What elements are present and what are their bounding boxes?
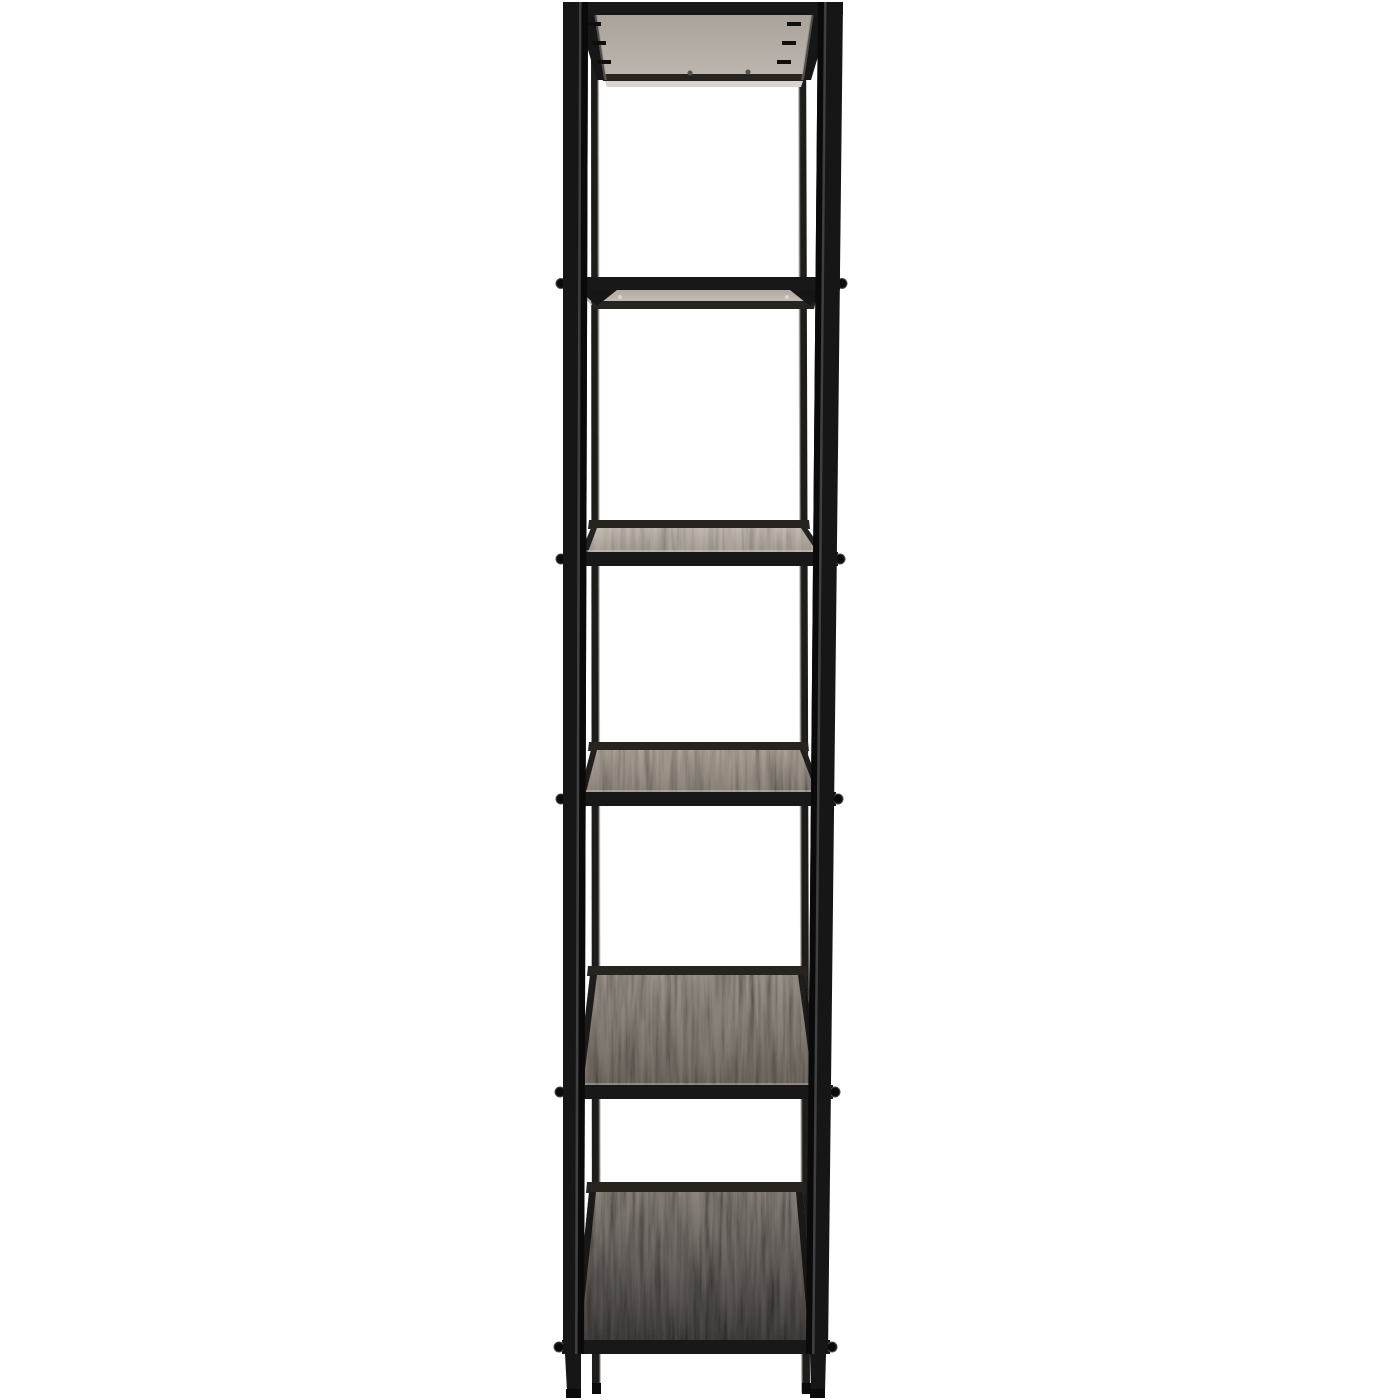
bracket-screw-icon bbox=[618, 295, 622, 299]
front-right-leg bbox=[810, 1354, 826, 1391]
top-back-rail-highlight bbox=[605, 81, 803, 87]
shelf-level-3 bbox=[581, 520, 824, 553]
bracket-screw-icon bbox=[785, 295, 789, 299]
crossbar-3 bbox=[563, 552, 838, 566]
shelf-5-grain bbox=[577, 975, 820, 1085]
shelf-5-back-rail bbox=[587, 966, 808, 976]
shelf-4-back-rail bbox=[588, 742, 809, 751]
crossbar-2 bbox=[563, 277, 840, 290]
shelf-level-2 bbox=[579, 290, 828, 309]
clip-icon bbox=[592, 41, 606, 45]
crossbar-1 bbox=[563, 2, 843, 15]
crossbar-4 bbox=[563, 792, 836, 806]
shelf-3-grain bbox=[581, 528, 824, 552]
screw-icon bbox=[830, 1087, 840, 1097]
clip-icon bbox=[782, 41, 796, 45]
clip-icon bbox=[777, 60, 791, 64]
clip-icon bbox=[787, 22, 801, 26]
panel-screw-icon bbox=[688, 71, 693, 76]
top-back-rail bbox=[601, 74, 807, 81]
shelf-unit-photo bbox=[0, 0, 1400, 1400]
shelf-2-back-rail bbox=[591, 301, 816, 309]
shelf-level-6 bbox=[574, 1182, 816, 1340]
shelf-level-5 bbox=[577, 966, 820, 1086]
front-right-foot bbox=[810, 1389, 825, 1398]
crossbar-6 bbox=[562, 1340, 830, 1354]
shelf-6-grain bbox=[574, 1192, 816, 1340]
clip-icon bbox=[597, 60, 611, 64]
screw-icon bbox=[827, 1342, 837, 1352]
shelf-6-back-rail bbox=[586, 1182, 806, 1193]
top-panel bbox=[577, 13, 831, 87]
shelf-level-4 bbox=[580, 742, 822, 793]
crossbar-5 bbox=[563, 1085, 833, 1099]
front-left-foot bbox=[566, 1389, 581, 1398]
clip-icon bbox=[587, 22, 601, 26]
screw-icon bbox=[833, 794, 843, 804]
shelf-4-grain bbox=[580, 750, 822, 792]
shelf-3-back-rail bbox=[588, 520, 810, 529]
photo-canvas: Studio product photo of a tall, narrow i… bbox=[0, 0, 1400, 1400]
back-right-foot bbox=[802, 1383, 811, 1394]
screw-icon bbox=[554, 1342, 564, 1352]
back-left-foot bbox=[592, 1383, 601, 1394]
front-left-leg bbox=[565, 1354, 581, 1391]
panel-screw-icon bbox=[746, 70, 751, 75]
